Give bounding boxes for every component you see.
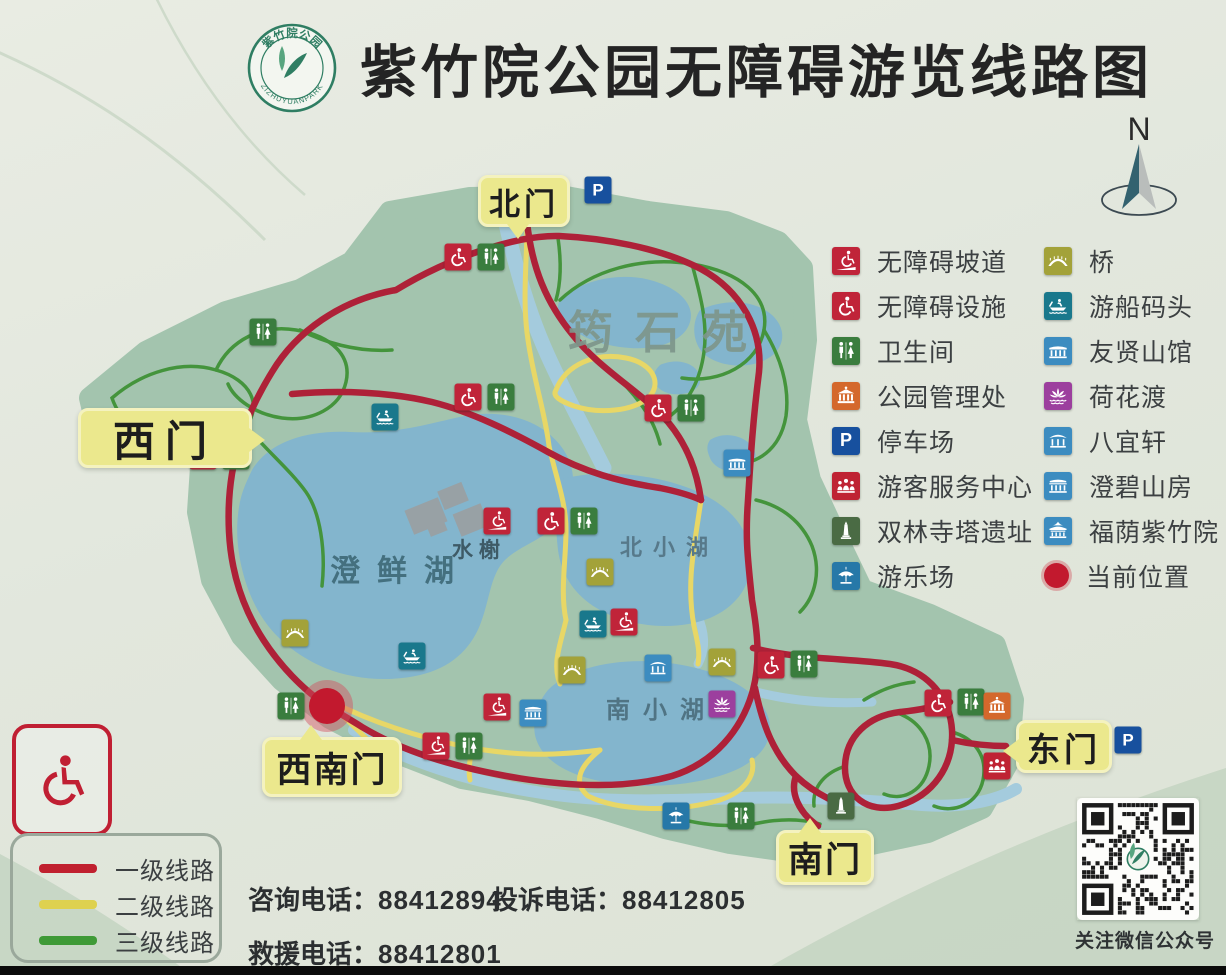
wheelchair-icon [538,508,565,535]
contact-item: 咨询电话：88412894 [248,880,492,917]
current-location-icon [1044,563,1069,588]
legend-label: 游乐场 [877,558,955,594]
legend-label: 桥 [1089,243,1115,279]
contact-number: 88412805 [622,885,746,915]
bridge-icon [559,657,586,684]
legend-row: 当前位置 [1044,553,1219,598]
gate-label-north: 北门 [478,175,570,227]
fuyin-temple-icon [1044,517,1072,545]
ramp-icon [484,694,511,721]
ramp-icon [484,508,511,535]
legend-label: 福荫紫竹院 [1089,513,1219,549]
toilet-icon [728,803,755,830]
legend-row: 游船码头 [1044,283,1219,328]
legend-row: 无障碍设施 [832,283,1033,328]
gate-label-west: 西门 [78,408,252,468]
bridge-icon [282,620,309,647]
contact-number: 88412801 [378,939,502,969]
legend-row: 无障碍坡道 [832,238,1033,283]
legend-row: 游客服务中心 [832,463,1033,508]
boat-dock-icon [399,643,426,670]
qr-code [1077,798,1199,920]
office-icon [984,693,1011,720]
legend-column-1: 无障碍坡道 无障碍设施 卫生间 [832,238,1033,598]
contact-label: 救援电话： [248,939,378,969]
legend-label: 双林寺塔遗址 [877,513,1033,549]
wheelchair-icon [645,395,672,422]
visitor-center-icon [832,472,860,500]
bridge-icon [587,559,614,586]
legend-row: 双林寺塔遗址 [832,508,1033,553]
gate-label-east: 东门 [1016,720,1112,773]
legend-label: 荷花渡 [1089,378,1167,414]
wheelchair-icon [832,292,860,320]
toilet-icon [678,395,705,422]
legend-row: 公园管理处 [832,373,1033,418]
wheelchair-icon [455,384,482,411]
wheelchair-icon [925,690,952,717]
chengbi-house-icon [520,700,547,727]
legend-label: 当前位置 [1086,558,1190,594]
lotus-ferry-icon [709,691,736,718]
legend-label: 停车场 [877,423,955,459]
boat-dock-icon [1044,292,1072,320]
legend-row: 游乐场 [832,553,1033,598]
boat-dock-icon [580,611,607,638]
wechat-qr-block: 关注微信公众号 [1075,798,1226,953]
toilet-icon [488,384,515,411]
toilet-icon [456,733,483,760]
legend-label: 卫生间 [877,333,955,369]
legend-row: 桥 [1044,238,1219,283]
contact-label: 咨询电话： [248,885,378,915]
parking-icon: P [585,177,612,204]
gate-label-south: 南门 [776,830,874,885]
qr-caption: 关注微信公众号 [1075,926,1226,953]
legend-column-2: 桥 游船码头 友贤山馆 [1044,238,1219,598]
toilet-icon [478,244,505,271]
toilet-icon [958,689,985,716]
legend-label: 游客服务中心 [877,468,1033,504]
legend-row: 友贤山馆 [1044,328,1219,373]
parking-icon: P [1115,727,1142,754]
contact-number: 88412894 [378,885,502,915]
contact-label: 投诉电话： [492,885,622,915]
legend-label: 游船码头 [1089,288,1193,324]
toilet-icon [571,508,598,535]
youxian-hall-icon [1044,337,1072,365]
office-icon [832,382,860,410]
bridge-icon [709,649,736,676]
legend-row: 澄碧山房 [1044,463,1219,508]
legend-label: 无障碍坡道 [877,243,1007,279]
contact-numbers: 咨询电话：88412894 投诉电话：88412805 救援电话：8841280… [248,880,746,971]
boat-dock-icon [372,404,399,431]
legend-row: 福荫紫竹院 [1044,508,1219,553]
playground-icon [663,803,690,830]
map-marker-layer: P P P [0,0,1226,975]
toilet-icon [250,319,277,346]
youxian-hall-icon [724,450,751,477]
ramp-icon [611,609,638,636]
legend-row: 卫生间 [832,328,1033,373]
bayi-pavilion-icon [1044,427,1072,455]
parking-icon: P [832,427,860,455]
lotus-ferry-icon [1044,382,1072,410]
wheelchair-icon [445,244,472,271]
pagoda-site-icon [832,517,860,545]
contact-item: 投诉电话：88412805 [492,880,746,917]
legend-label: 公园管理处 [877,378,1007,414]
wheelchair-icon [758,652,785,679]
legend-label: 友贤山馆 [1089,333,1193,369]
pagoda-site-icon [828,793,855,820]
legend-label: 澄碧山房 [1089,468,1193,504]
park-map-sign: 紫竹院公园 ZIZHUYUANPARK 紫竹院公园无障碍游览线路图 N [0,0,1226,975]
legend-label: 八宜轩 [1089,423,1167,459]
toilet-icon [832,337,860,365]
chengbi-house-icon [1044,472,1072,500]
bayi-pavilion-icon [645,655,672,682]
legend-row: 八宜轩 [1044,418,1219,463]
bridge-icon [1044,247,1072,275]
playground-icon [832,562,860,590]
gate-label-southwest: 西南门 [262,737,402,797]
legend-row: P 停车场 [832,418,1033,463]
legend-label: 无障碍设施 [877,288,1007,324]
ramp-icon [832,247,860,275]
ramp-icon [423,733,450,760]
toilet-icon [791,651,818,678]
contact-item: 救援电话：88412801 [248,934,492,971]
legend-row: 荷花渡 [1044,373,1219,418]
